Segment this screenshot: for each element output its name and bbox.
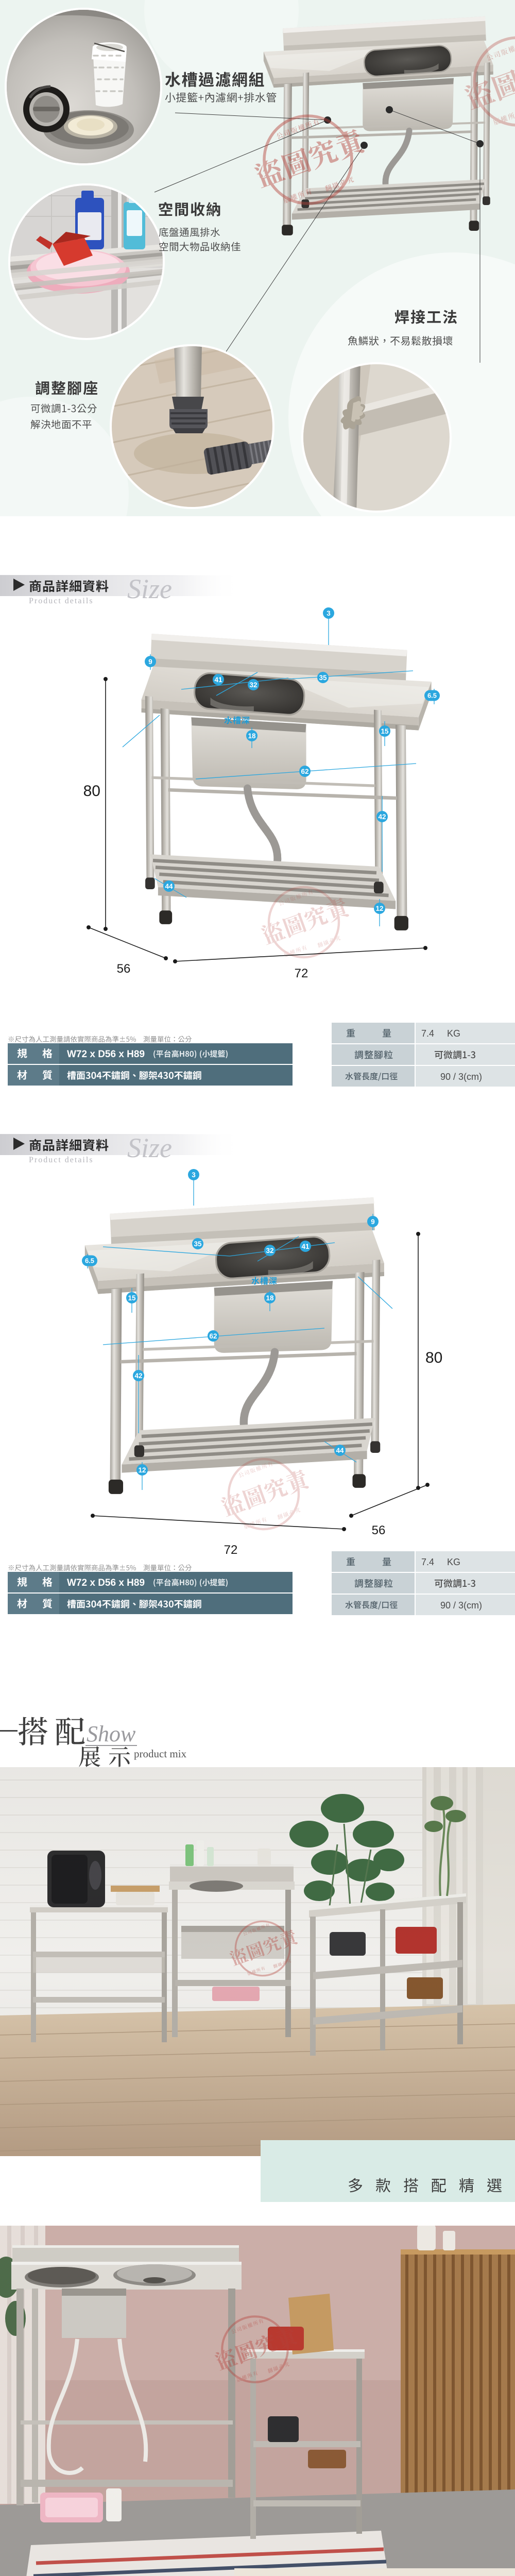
svg-text:62: 62 xyxy=(209,1332,217,1340)
svg-text:12: 12 xyxy=(138,1466,146,1474)
svg-text:7.4: 7.4 xyxy=(421,1557,434,1567)
svg-text:35: 35 xyxy=(194,1240,202,1248)
svg-text:18: 18 xyxy=(248,732,256,740)
svg-text:18: 18 xyxy=(266,1294,274,1302)
svg-text:Product details: Product details xyxy=(29,597,94,605)
svg-text:W72 x D56 x H89: W72 x D56 x H89 xyxy=(67,1578,145,1588)
svg-text:32: 32 xyxy=(249,681,257,689)
svg-text:W72 x D56 x H89: W72 x D56 x H89 xyxy=(67,1049,145,1060)
svg-text:9: 9 xyxy=(371,1218,375,1226)
svg-text:90 / 3(cm): 90 / 3(cm) xyxy=(440,1072,482,1082)
svg-text:41: 41 xyxy=(301,1243,310,1250)
svg-text:72: 72 xyxy=(295,967,308,980)
svg-text:3: 3 xyxy=(192,1171,196,1179)
svg-text:Size: Size xyxy=(127,573,172,604)
svg-text:44: 44 xyxy=(336,1447,344,1454)
svg-text:56: 56 xyxy=(117,962,131,976)
svg-text:Product details: Product details xyxy=(29,1156,94,1164)
svg-text:80: 80 xyxy=(425,1349,442,1366)
svg-text:41: 41 xyxy=(214,676,222,684)
svg-text:32: 32 xyxy=(266,1247,273,1255)
svg-text:KG: KG xyxy=(447,1557,460,1567)
svg-text:6.5: 6.5 xyxy=(427,692,437,700)
svg-text:12: 12 xyxy=(375,905,383,912)
svg-text:42: 42 xyxy=(134,1372,142,1380)
svg-text:6.5: 6.5 xyxy=(85,1257,94,1265)
svg-text:35: 35 xyxy=(319,674,327,682)
svg-text:42: 42 xyxy=(378,813,386,821)
svg-text:80: 80 xyxy=(83,783,100,800)
svg-text:3: 3 xyxy=(327,609,331,617)
svg-text:44: 44 xyxy=(165,883,173,890)
svg-text:9: 9 xyxy=(148,658,152,666)
svg-text:62: 62 xyxy=(301,768,308,775)
svg-text:KG: KG xyxy=(447,1028,460,1039)
svg-text:product mix: product mix xyxy=(134,1748,187,1760)
svg-text:Size: Size xyxy=(127,1132,172,1163)
svg-text:Show: Show xyxy=(87,1721,136,1747)
svg-text:15: 15 xyxy=(381,727,389,735)
svg-text:72: 72 xyxy=(224,1543,238,1557)
svg-text:56: 56 xyxy=(372,1523,386,1537)
svg-text:7.4: 7.4 xyxy=(421,1028,434,1039)
svg-text:90 / 3(cm): 90 / 3(cm) xyxy=(440,1600,482,1611)
svg-text:15: 15 xyxy=(128,1294,136,1302)
